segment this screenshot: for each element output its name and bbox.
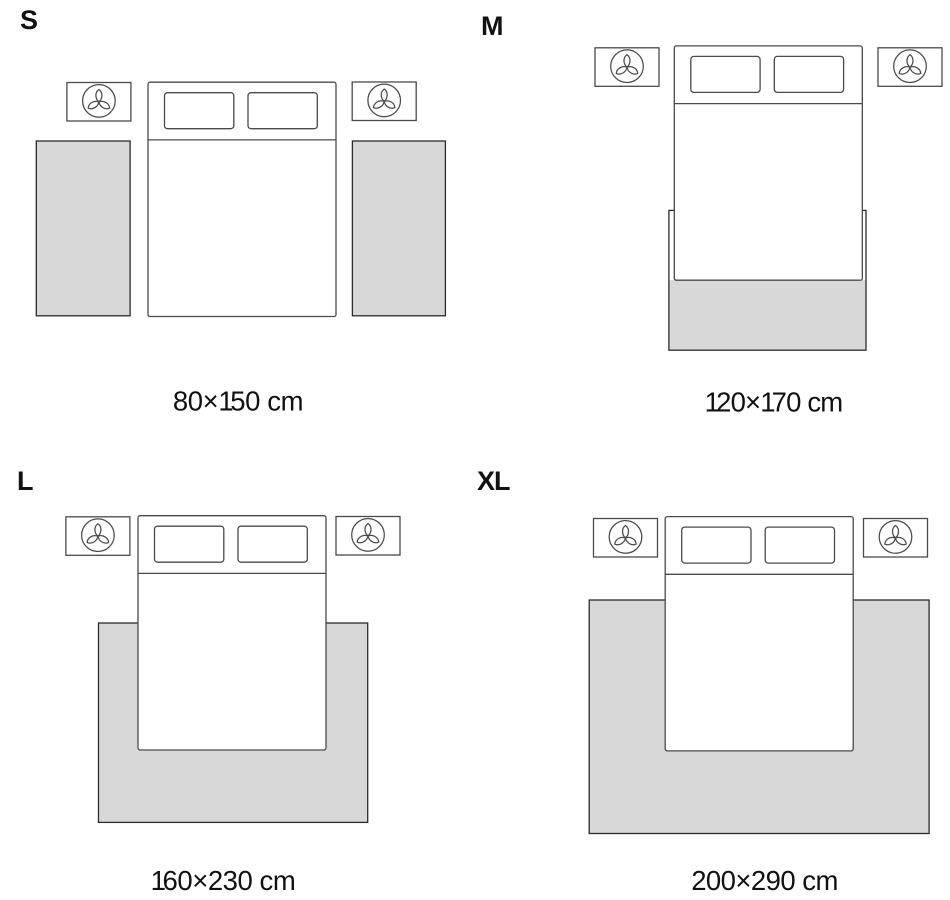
svg-text:80×150 cm: 80×150 cm <box>173 386 303 417</box>
svg-text:M: M <box>481 11 504 41</box>
svg-text:200×290 cm: 200×290 cm <box>691 865 838 896</box>
svg-text:XL: XL <box>477 466 510 496</box>
svg-text:L: L <box>17 466 34 496</box>
svg-text:120×170 cm: 120×170 cm <box>705 387 843 418</box>
svg-text:160×230 cm: 160×230 cm <box>151 865 296 896</box>
svg-text:S: S <box>20 5 38 35</box>
